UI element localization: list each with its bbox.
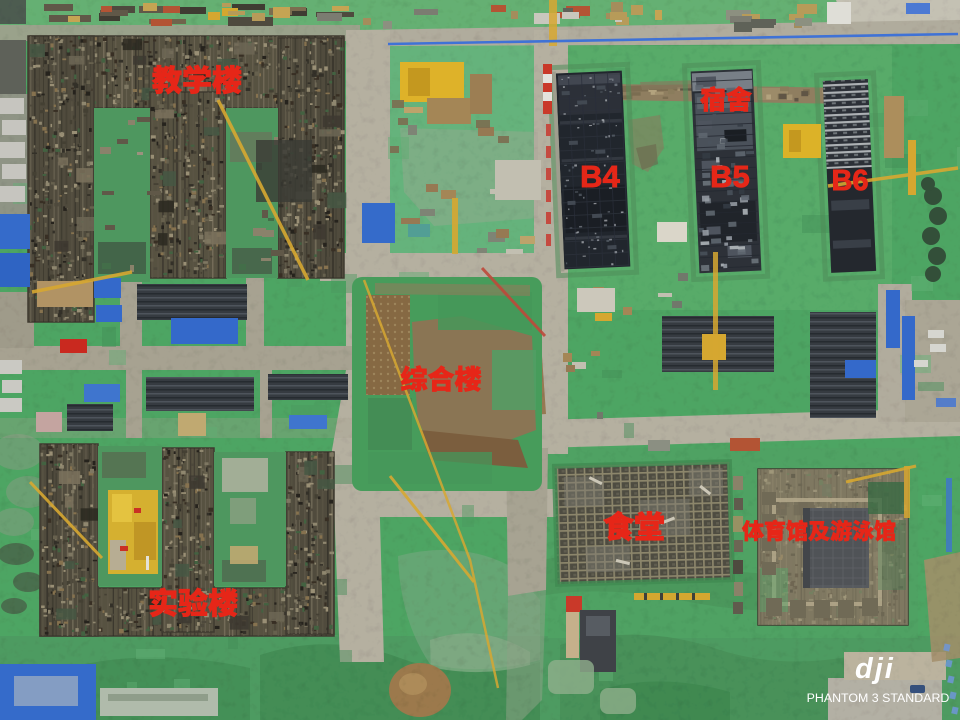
svg-text:PHANTOM 3 STANDARD: PHANTOM 3 STANDARD xyxy=(807,691,950,705)
svg-text:B6: B6 xyxy=(831,165,868,197)
svg-text:B4: B4 xyxy=(580,159,620,194)
svg-text:dji: dji xyxy=(855,653,895,685)
svg-text:B5: B5 xyxy=(710,159,750,194)
